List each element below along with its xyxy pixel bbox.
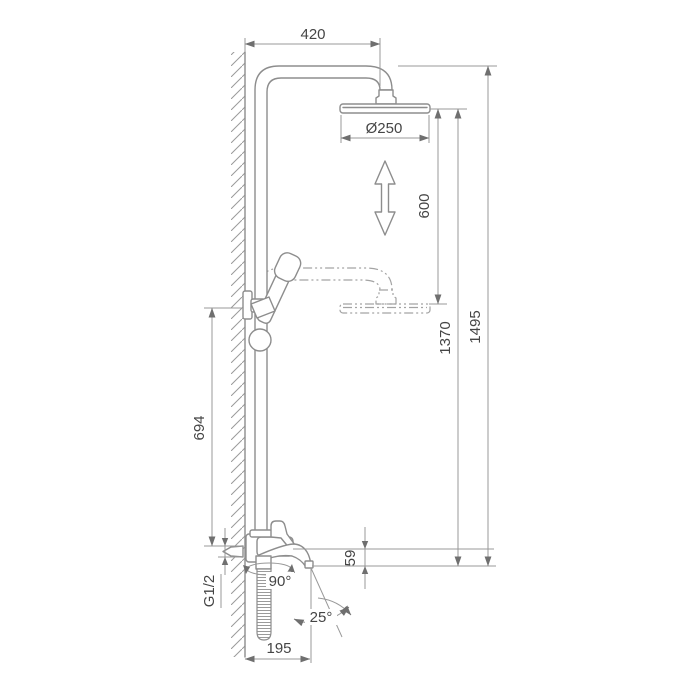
dim-g12-label: G1/2 — [201, 575, 218, 608]
spout-swing-line — [311, 568, 342, 637]
dim-1370-label: 1370 — [437, 321, 454, 354]
swing-25-label: 25° — [310, 609, 333, 626]
dim-g12-arrow-top — [222, 538, 228, 546]
riser-base-collar — [250, 530, 272, 537]
swivel-90-label: 90° — [269, 573, 292, 590]
dim-195-label: 195 — [266, 640, 291, 657]
dim-g12-arrow-bottom — [222, 557, 228, 565]
dim-59-arrow-bottom — [362, 566, 368, 574]
shower-head — [340, 104, 430, 113]
phantom-head-connector — [376, 290, 396, 304]
dim-59-arrow-top — [362, 541, 368, 549]
dim-600-label: 600 — [416, 193, 433, 218]
shower-system-dimension-drawing: 420 Ø250 600 1370 1495 59 694 G1/2 90° 2… — [0, 0, 700, 700]
height-adjust-arrow-icon — [375, 161, 395, 235]
dim-1495-label: 1495 — [467, 310, 484, 343]
phantom-shower-head — [340, 304, 430, 313]
technical-drawing-page: 420 Ø250 600 1370 1495 59 694 G1/2 90° 2… — [0, 0, 700, 700]
spout-aerator — [305, 561, 313, 568]
shower-head-connector-nut — [376, 90, 396, 104]
dim-59-label: 59 — [342, 550, 359, 567]
wall-supply-stub — [223, 546, 243, 557]
dim-420-label: 420 — [300, 26, 325, 43]
wall-hatch-band — [231, 52, 245, 657]
slider-knob — [249, 329, 271, 351]
dim-694-label: 694 — [191, 415, 208, 440]
dim-250-label: Ø250 — [366, 120, 403, 137]
hose-connector-nut — [256, 556, 271, 569]
